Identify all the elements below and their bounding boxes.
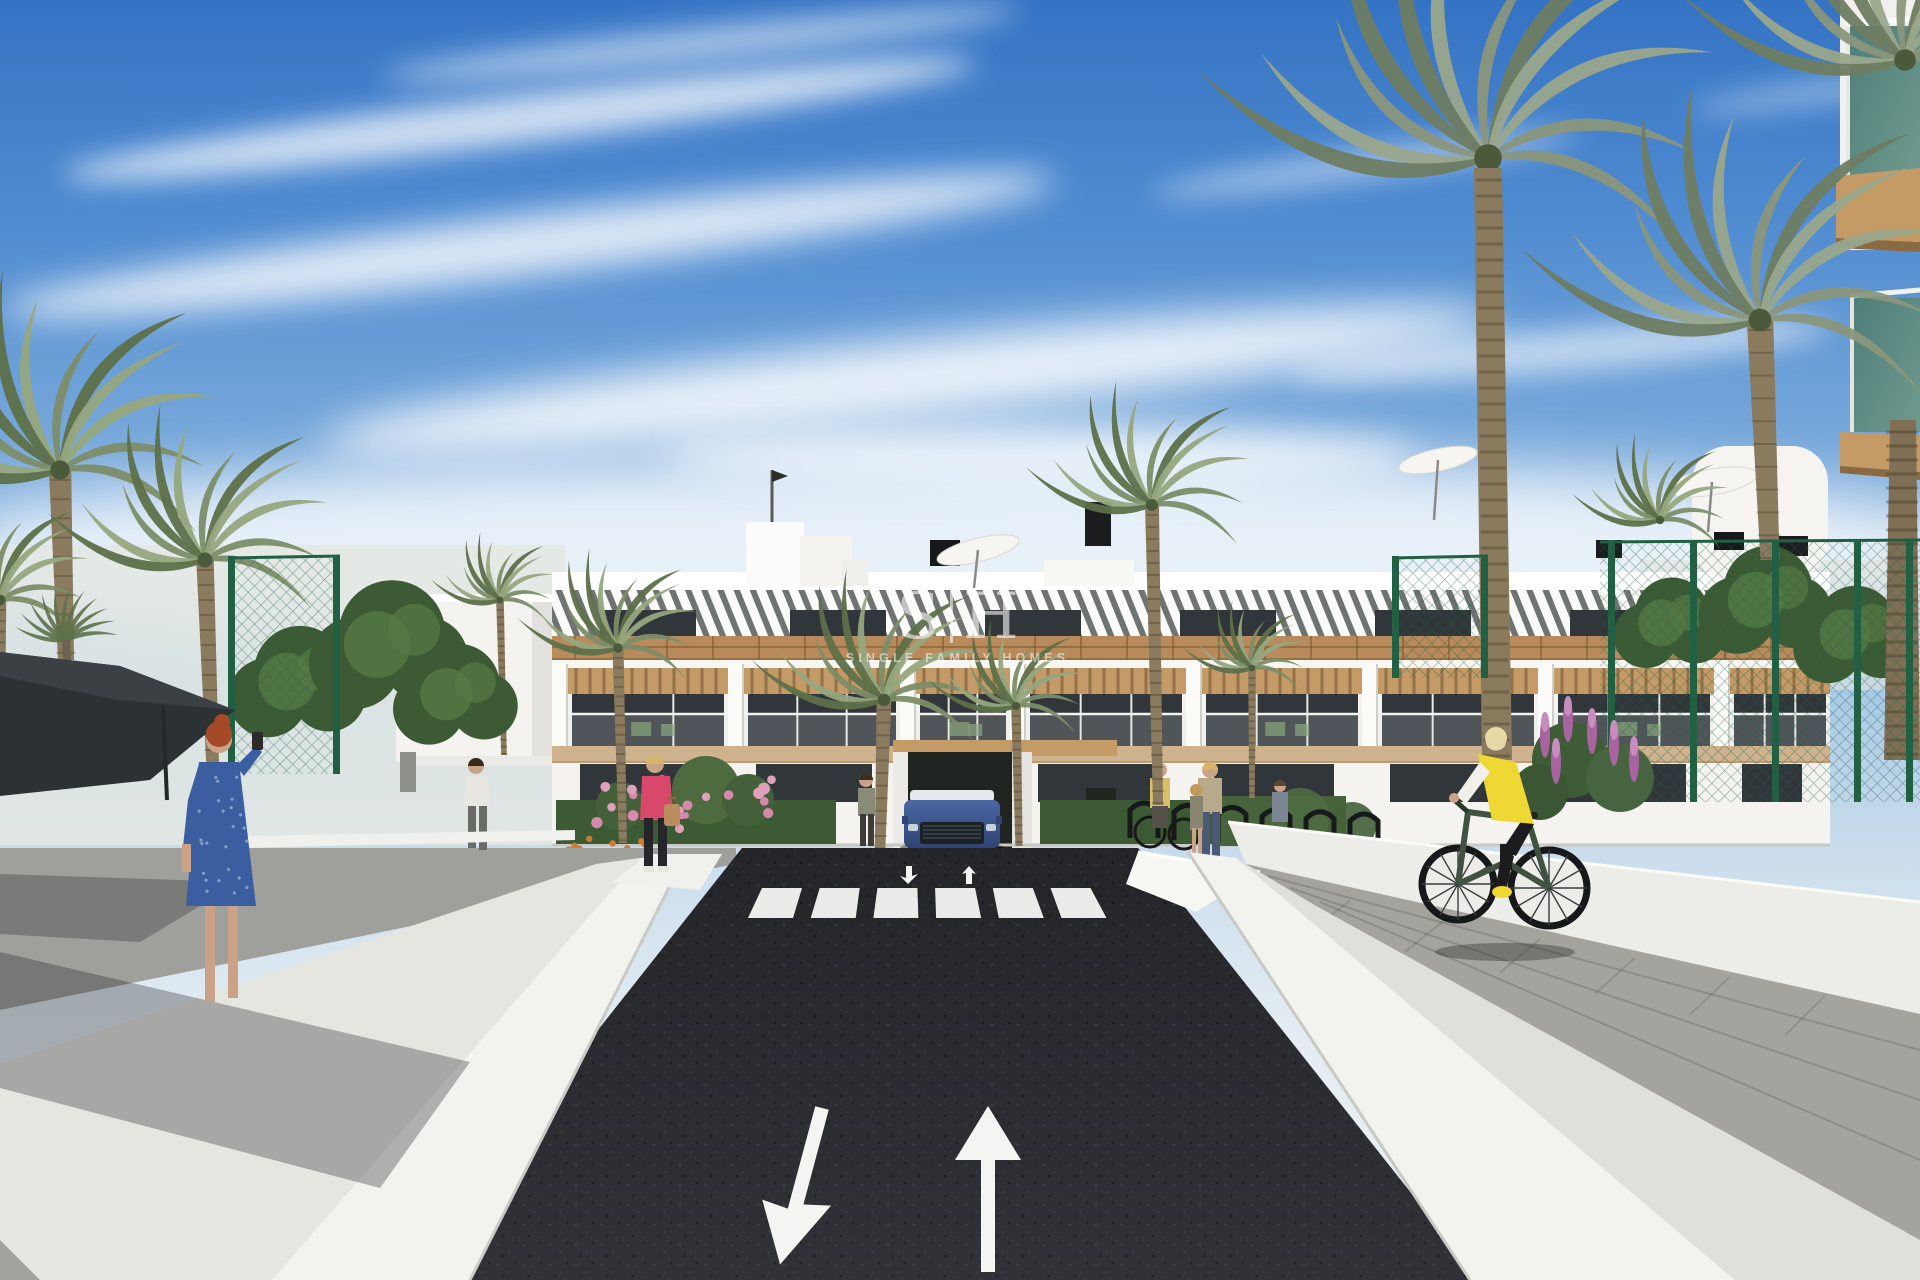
blue-suv xyxy=(900,790,1004,855)
scene-canvas xyxy=(0,0,1920,1280)
architectural-render: S H SINGLE FAMILY HOMES xyxy=(0,0,1920,1280)
